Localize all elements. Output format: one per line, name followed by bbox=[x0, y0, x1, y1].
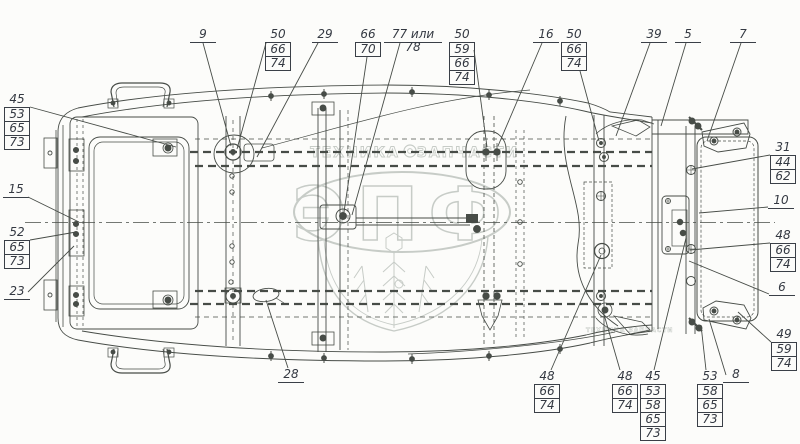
part-number: 10 bbox=[768, 194, 794, 209]
part-number: 6 bbox=[769, 281, 795, 296]
part-number: 77 или 78 bbox=[384, 28, 442, 43]
part-number: 65 bbox=[4, 241, 30, 255]
callout-48b1: 486674 bbox=[534, 370, 560, 413]
part-number: 23 bbox=[4, 285, 30, 300]
callout-77-78: 77 или 78 bbox=[384, 28, 442, 43]
cross-member-4 bbox=[584, 115, 654, 346]
part-number: 50 bbox=[449, 28, 475, 43]
part-number: 58 bbox=[697, 385, 723, 399]
callout-28: 28 bbox=[278, 368, 304, 383]
part-number: 73 bbox=[4, 136, 30, 150]
part-number: 31 bbox=[770, 141, 796, 156]
control-rod bbox=[564, 116, 618, 326]
callout-39: 39 bbox=[641, 28, 667, 43]
part-number: 74 bbox=[612, 399, 638, 413]
part-number: 39 bbox=[641, 28, 667, 43]
part-number: 44 bbox=[770, 156, 796, 170]
callout-7: 7 bbox=[730, 28, 756, 43]
part-number: 66 bbox=[449, 57, 475, 71]
oval-grommet bbox=[252, 287, 284, 303]
part-number: 8 bbox=[723, 368, 749, 383]
part-number: 53 bbox=[4, 108, 30, 122]
part-number: 59 bbox=[449, 43, 475, 57]
callout-5: 5 bbox=[675, 28, 701, 43]
callout-45l: 45536573 bbox=[4, 93, 30, 150]
callout-16: 16 bbox=[533, 28, 559, 43]
part-number: 74 bbox=[561, 57, 587, 71]
part-number: 50 bbox=[561, 28, 587, 43]
diagram-page: ТЕХНИКА ЗАПЧАСТИ ЭПФ ТЕХНИК bbox=[0, 0, 800, 444]
part-number: 74 bbox=[534, 399, 560, 413]
part-number: 62 bbox=[770, 170, 796, 184]
right-latch bbox=[662, 196, 689, 254]
part-number: 65 bbox=[640, 413, 666, 427]
callout-6: 6 bbox=[769, 281, 795, 296]
callout-8: 8 bbox=[723, 368, 749, 383]
callout-48r: 486674 bbox=[770, 229, 796, 272]
part-number: 45 bbox=[4, 93, 30, 108]
part-number: 16 bbox=[533, 28, 559, 43]
part-number: 74 bbox=[265, 57, 291, 71]
callout-66-70: 6670 bbox=[355, 28, 381, 57]
callout-53b: 53586573 bbox=[697, 370, 723, 427]
part-number: 52 bbox=[4, 226, 30, 241]
watermark-band-small: ТЕХНИКА ЗАПЧАСТИ bbox=[586, 327, 673, 334]
callout-50c: 506674 bbox=[561, 28, 587, 71]
epf-watermark: ТЕХНИКА ЗАПЧАСТИ ЭПФ ТЕХНИК bbox=[292, 145, 673, 334]
part-number: 66 bbox=[534, 385, 560, 399]
part-number: 9 bbox=[190, 28, 216, 43]
grab-handle-bottom bbox=[108, 348, 174, 373]
callout-48b2: 486674 bbox=[612, 370, 638, 413]
part-number: 65 bbox=[697, 399, 723, 413]
part-number: 74 bbox=[449, 71, 475, 85]
cross-strip bbox=[516, 130, 524, 340]
part-number: 59 bbox=[771, 343, 797, 357]
callout-52: 526573 bbox=[4, 226, 30, 269]
part-number: 70 bbox=[355, 43, 381, 57]
callout-15: 15 bbox=[3, 183, 29, 198]
part-number: 48 bbox=[770, 229, 796, 244]
right-end-assembly bbox=[652, 117, 758, 334]
cross-member-1 bbox=[214, 116, 274, 346]
callout-45b: 4553586573 bbox=[640, 370, 666, 441]
door-hinges bbox=[69, 139, 84, 316]
callout-49: 495974 bbox=[771, 328, 797, 371]
part-number: 53 bbox=[697, 370, 723, 385]
part-number: 28 bbox=[278, 368, 304, 383]
part-number: 29 bbox=[312, 28, 338, 43]
part-number: 66 bbox=[265, 43, 291, 57]
part-number: 73 bbox=[697, 413, 723, 427]
left-door-panel bbox=[44, 117, 198, 329]
callout-9: 9 bbox=[190, 28, 216, 43]
part-number: 49 bbox=[771, 328, 797, 343]
part-number: 53 bbox=[640, 385, 666, 399]
part-number: 65 bbox=[4, 122, 30, 136]
diagram-canvas: ТЕХНИКА ЗАПЧАСТИ ЭПФ ТЕХНИК bbox=[0, 0, 800, 444]
part-number: 73 bbox=[640, 427, 666, 441]
part-number: 50 bbox=[265, 28, 291, 43]
part-number: 73 bbox=[4, 255, 30, 269]
part-number: 7 bbox=[730, 28, 756, 43]
part-number: 66 bbox=[355, 28, 381, 43]
callout-50a: 506674 bbox=[265, 28, 291, 71]
part-number: 58 bbox=[640, 399, 666, 413]
callout-23: 23 bbox=[4, 285, 30, 300]
part-number: 66 bbox=[561, 43, 587, 57]
part-number: 74 bbox=[771, 357, 797, 371]
callout-29: 29 bbox=[312, 28, 338, 43]
callout-50b: 50596674 bbox=[449, 28, 475, 85]
part-number: 66 bbox=[770, 244, 796, 258]
callout-10: 10 bbox=[768, 194, 794, 209]
part-number: 48 bbox=[612, 370, 638, 385]
part-number: 48 bbox=[534, 370, 560, 385]
callout-31: 314462 bbox=[770, 141, 796, 184]
part-number: 45 bbox=[640, 370, 666, 385]
part-number: 66 bbox=[612, 385, 638, 399]
part-number: 74 bbox=[770, 258, 796, 272]
part-number: 15 bbox=[3, 183, 29, 198]
part-number: 5 bbox=[675, 28, 701, 43]
